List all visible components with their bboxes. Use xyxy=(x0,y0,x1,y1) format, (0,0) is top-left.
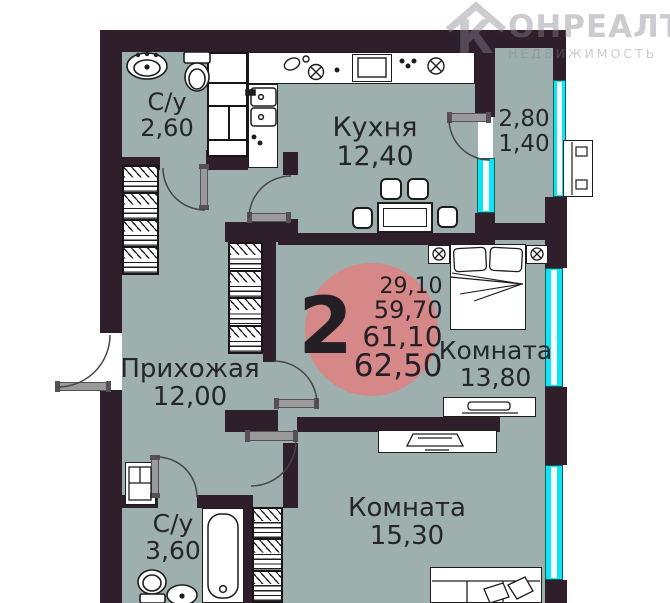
stove xyxy=(352,54,392,82)
wall-right-upper xyxy=(545,197,567,268)
wall-kitchen-stub xyxy=(283,152,298,175)
watermark: К ОНРЕАЛТ НЕДВИЖИМОСТЬ xyxy=(444,0,670,66)
door-leaf-kitchen xyxy=(247,213,291,222)
dresser-bedroom xyxy=(443,397,536,417)
bed xyxy=(450,244,526,330)
area-value: 29,10 xyxy=(380,276,443,298)
room-area: 13,80 xyxy=(428,364,563,391)
wardrobe-hall-left xyxy=(122,165,159,275)
wall-left-lower xyxy=(100,390,122,603)
wall-right-mid xyxy=(545,387,567,465)
tv-stand xyxy=(378,430,497,453)
wall-bedroom-left xyxy=(263,242,276,362)
room-name: С/у xyxy=(128,510,218,537)
sofa xyxy=(430,567,542,603)
wardrobe-living xyxy=(252,507,283,603)
room-area: 12,40 xyxy=(305,142,445,171)
room-label-balcony: 2,80 1,40 xyxy=(494,107,554,157)
door-leaf-living xyxy=(245,431,298,441)
door-leaf-balcony xyxy=(447,113,491,122)
chair-top-1 xyxy=(380,178,402,200)
room-label-living: Комната 15,30 xyxy=(342,494,472,550)
radiator-unit xyxy=(563,140,593,197)
wall-right-lower xyxy=(545,580,567,603)
apartment-summary-badge: 2 29,10 59,70 61,10 62,50 xyxy=(305,263,438,396)
floor-plan: С/у 2,60 Кухня 12,40 2,80 1,40 Комната 1… xyxy=(0,0,670,603)
door-leaf-entry xyxy=(55,382,111,391)
door-leaf-bedroom xyxy=(274,399,319,408)
brand-logo-icon: К xyxy=(444,0,508,66)
room-name: С/у xyxy=(122,90,212,116)
wall-divider-left xyxy=(225,410,278,432)
room-area: 3,60 xyxy=(128,537,218,564)
brand-logo-letter: К xyxy=(456,10,494,64)
room-name: Комната xyxy=(342,494,472,522)
room-label-kitchen: Кухня 12,40 xyxy=(305,113,445,171)
wall-hall-corner xyxy=(225,222,283,242)
room-name: Прихожая xyxy=(120,355,260,383)
room-label-bathroom-bottom: С/у 3,60 xyxy=(128,510,218,564)
kitchen-counter-left xyxy=(248,84,278,168)
utility-shaft xyxy=(207,52,248,157)
wardrobe-hall-mid xyxy=(228,242,263,354)
area-value: 62,50 xyxy=(354,351,443,383)
door-leaf-bath-top xyxy=(200,164,208,210)
room-label-bedroom: Комната 13,80 xyxy=(428,337,563,391)
room-name: Кухня xyxy=(305,113,445,142)
window-kitchen-balcony xyxy=(477,158,495,213)
room-label-bathroom-top: С/у 2,60 xyxy=(122,90,212,142)
room-area-reduced: 1,40 xyxy=(494,132,554,157)
room-area: 2,80 xyxy=(494,107,554,132)
door-leaf-bath-bottom xyxy=(151,455,159,498)
chair-right xyxy=(437,206,458,228)
rooms-count: 2 xyxy=(298,288,352,366)
room-area: 12,00 xyxy=(120,383,260,411)
room-label-hallway: Прихожая 12,00 xyxy=(120,355,260,411)
brand-name: ОНРЕАЛТ xyxy=(508,12,670,43)
chair-left xyxy=(352,207,373,229)
area-value: 61,10 xyxy=(362,323,442,352)
wall-left-upper xyxy=(100,30,122,333)
brand-tagline: НЕДВИЖИМОСТЬ xyxy=(508,46,670,61)
chair-top-2 xyxy=(407,178,429,200)
nightstand-right xyxy=(526,245,548,264)
window-living xyxy=(545,465,563,580)
dining-table xyxy=(377,202,433,233)
room-name: Комната xyxy=(428,337,563,364)
room-area: 2,60 xyxy=(122,116,212,142)
wall-living-left xyxy=(283,443,298,508)
nightstand-left xyxy=(428,245,450,264)
wall-top xyxy=(100,30,478,52)
room-area: 15,30 xyxy=(342,522,472,550)
